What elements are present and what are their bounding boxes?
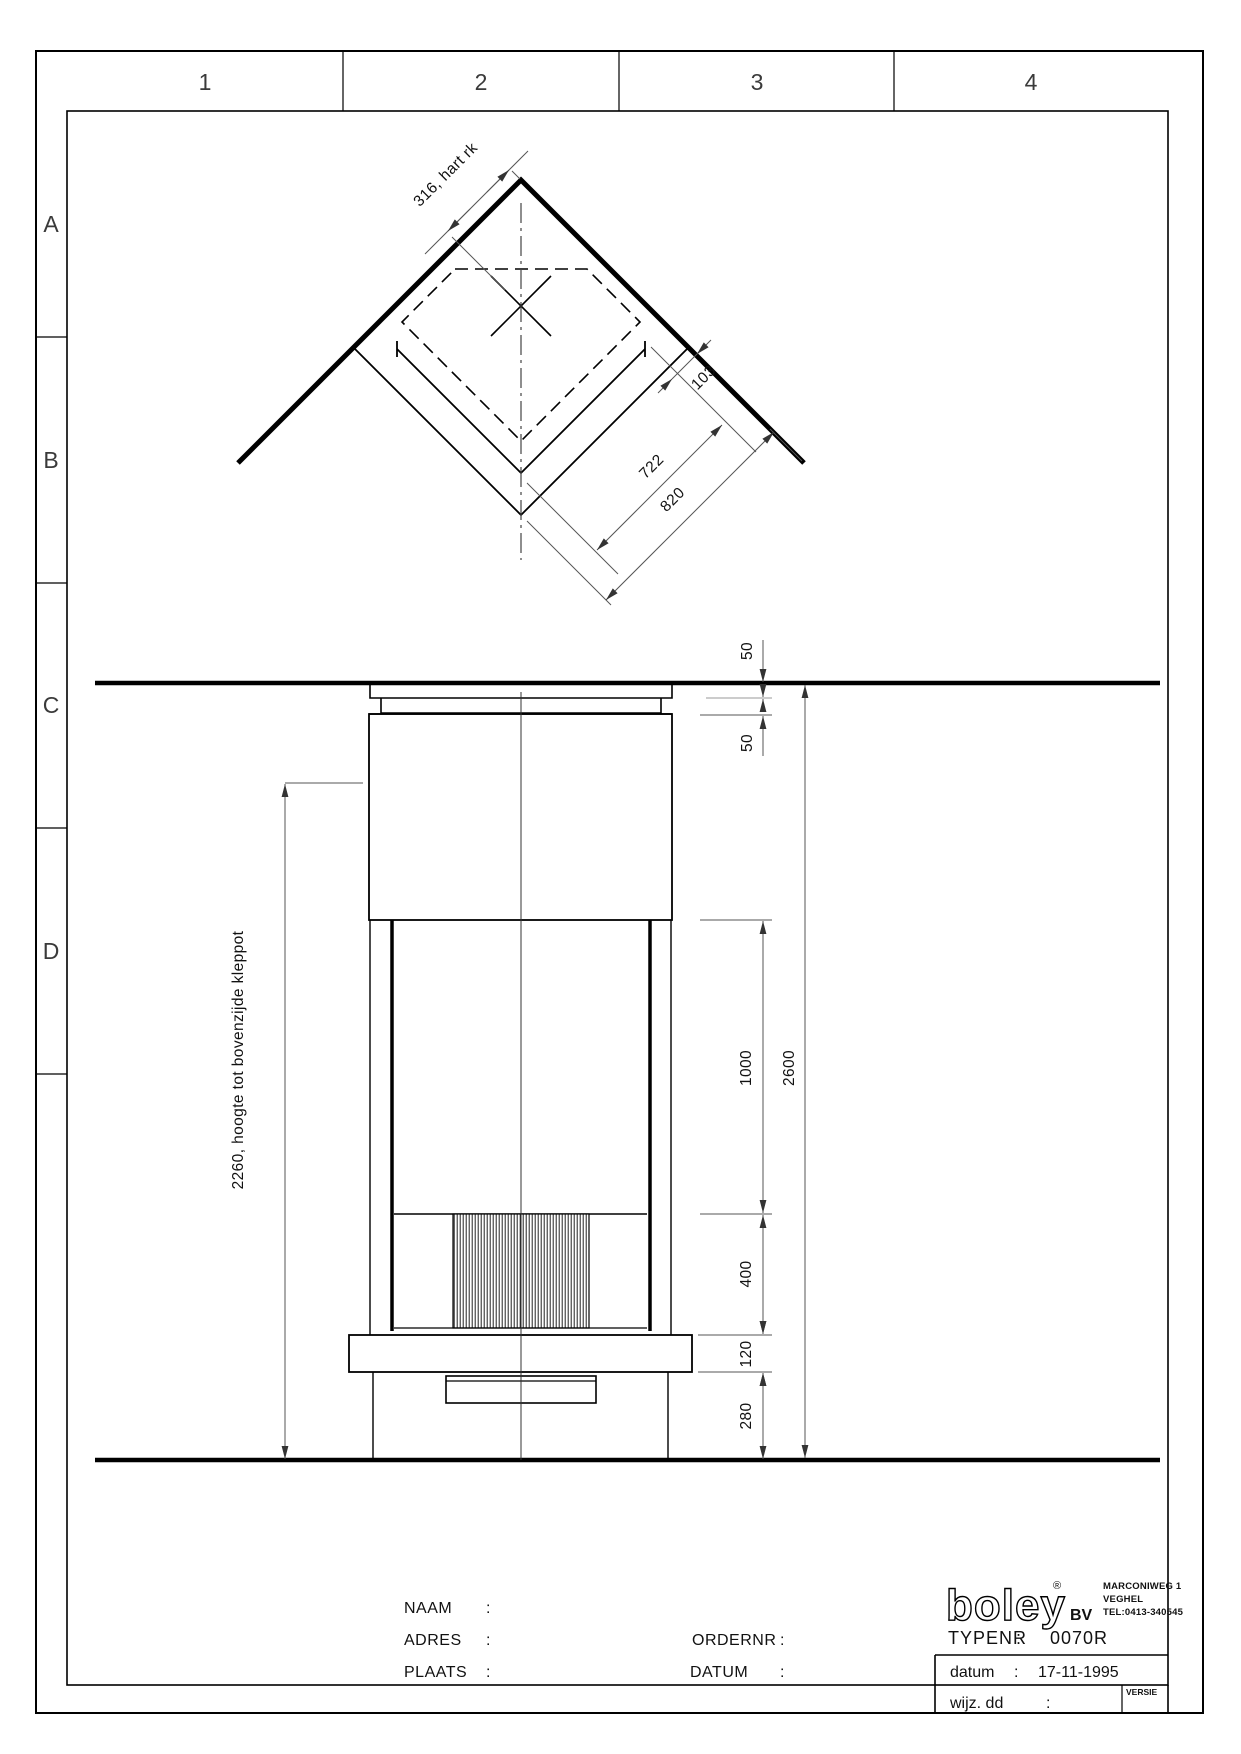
- company-address-line1: MARCONIWEG 1: [1103, 1581, 1182, 1592]
- row-label-a: A: [43, 211, 59, 237]
- boley-logo: boley: [946, 1581, 1066, 1630]
- typenr-colon: :: [1016, 1628, 1022, 1648]
- versie-label: VERSIE: [1126, 1687, 1158, 1697]
- dim-outer-text: 820: [657, 484, 688, 515]
- dim-1000-text: 1000: [738, 1050, 755, 1086]
- dim-height-left: [285, 783, 363, 1459]
- date-row-value: 17-11-1995: [1038, 1664, 1119, 1681]
- dim-280-text: 280: [738, 1402, 755, 1429]
- technical-drawing: 1 2 3 4 A B C D 316, hart rk: [0, 0, 1241, 1754]
- dim-inner-text: 722: [636, 451, 667, 482]
- dim-120-text: 120: [738, 1340, 755, 1367]
- drawing-sheet: 1 2 3 4 A B C D 316, hart rk: [0, 0, 1241, 1754]
- dim-400-text: 400: [738, 1260, 755, 1287]
- revision-label: wijz. dd: [949, 1695, 1003, 1712]
- dim-height-note-text: 2260, hoogte tot bovenzijde kleppot: [230, 930, 247, 1189]
- company-address-line3: TEL:0413-340545: [1103, 1607, 1184, 1618]
- datum-colon: :: [780, 1664, 785, 1681]
- row-label-b: B: [43, 447, 58, 473]
- naam-label: NAAM: [404, 1600, 452, 1617]
- adres-label: ADRES: [404, 1632, 462, 1649]
- dim-hart-rk-text: 316, hart rk: [410, 139, 481, 210]
- dim-722-820: [527, 425, 802, 605]
- logo-registered-mark: ®: [1053, 1580, 1061, 1592]
- dim-50-collar-text: 50: [739, 734, 756, 752]
- sheet-frame: [36, 51, 1203, 1713]
- column-label-2: 2: [475, 69, 488, 95]
- column-label-4: 4: [1025, 69, 1038, 95]
- revision-colon: :: [1046, 1695, 1050, 1712]
- logo-bv: BV: [1070, 1607, 1093, 1624]
- row-label-d: D: [43, 938, 60, 964]
- company-address-line2: VEGHEL: [1103, 1594, 1143, 1605]
- column-label-1: 1: [199, 69, 212, 95]
- ruler-labels: 1 2 3 4 A B C D: [43, 69, 1038, 964]
- outer-border: [36, 51, 1203, 1713]
- datum-label: DATUM: [690, 1664, 748, 1681]
- ordernr-label: ORDERNR: [692, 1632, 776, 1649]
- plaats-colon: :: [486, 1664, 491, 1681]
- naam-colon: :: [486, 1600, 491, 1617]
- date-row-colon: :: [1014, 1664, 1018, 1681]
- inner-frame: [67, 111, 1168, 1685]
- top-view: 316, hart rk 103 722 820: [238, 139, 804, 605]
- dim-2600-text: 2600: [781, 1050, 798, 1086]
- dim-50-top-text: 50: [739, 642, 756, 660]
- row-label-c: C: [43, 692, 60, 718]
- ordernr-colon: :: [780, 1632, 785, 1649]
- elevation-view: 50 50 1000 2600 400 120 280 2260, hoogte…: [95, 640, 1160, 1460]
- column-label-3: 3: [751, 69, 764, 95]
- adres-colon: :: [486, 1632, 491, 1649]
- typenr-value: 0070R: [1050, 1628, 1108, 1648]
- dim-chain-right: [698, 640, 805, 1459]
- plaats-label: PLAATS: [404, 1664, 467, 1681]
- date-row-label: datum: [950, 1664, 994, 1681]
- title-block: NAAM : ADRES : PLAATS : ORDERNR : DATUM …: [404, 1580, 1184, 1713]
